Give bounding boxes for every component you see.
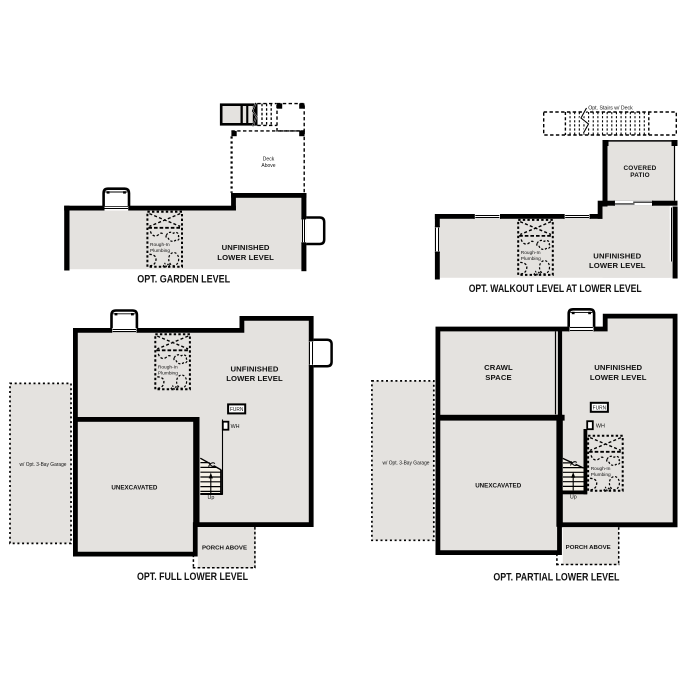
- svg-text:LOWER LEVEL: LOWER LEVEL: [217, 253, 274, 262]
- svg-text:Up: Up: [570, 495, 577, 501]
- svg-text:SPACE: SPACE: [485, 373, 511, 382]
- svg-text:OPT. FULL LOWER LEVEL: OPT. FULL LOWER LEVEL: [137, 571, 248, 583]
- svg-text:OPT. PARTIAL LOWER LEVEL: OPT. PARTIAL LOWER LEVEL: [493, 572, 619, 584]
- svg-text:CRAWL: CRAWL: [484, 363, 513, 372]
- svg-text:WH: WH: [596, 423, 605, 429]
- svg-text:w/ Opt. 3-Bay Garage: w/ Opt. 3-Bay Garage: [383, 461, 430, 467]
- svg-text:UNFINISHED: UNFINISHED: [222, 243, 270, 252]
- svg-text:PORCH ABOVE: PORCH ABOVE: [202, 546, 247, 552]
- svg-text:WH: WH: [231, 424, 240, 430]
- svg-text:UNFINISHED: UNFINISHED: [593, 252, 641, 261]
- svg-text:OPT. WALKOUT LEVEL AT LOWER LE: OPT. WALKOUT LEVEL AT LOWER LEVEL: [469, 283, 642, 295]
- svg-text:w/ Opt. 3-Bay Garage: w/ Opt. 3-Bay Garage: [20, 462, 67, 468]
- svg-text:Deck: Deck: [263, 157, 275, 163]
- svg-text:UNFINISHED: UNFINISHED: [231, 364, 279, 373]
- svg-text:OPT. GARDEN LEVEL: OPT. GARDEN LEVEL: [137, 273, 230, 285]
- svg-text:PORCH ABOVE: PORCH ABOVE: [566, 545, 611, 551]
- svg-text:UNEXCAVATED: UNEXCAVATED: [475, 482, 521, 489]
- svg-text:LOWER LEVEL: LOWER LEVEL: [589, 261, 646, 270]
- svg-text:Up: Up: [207, 495, 214, 501]
- svg-text:LOWER LEVEL: LOWER LEVEL: [590, 373, 647, 382]
- svg-text:UNEXCAVATED: UNEXCAVATED: [111, 485, 157, 492]
- svg-text:UNFINISHED: UNFINISHED: [594, 363, 642, 372]
- svg-text:COVERED: COVERED: [623, 165, 656, 172]
- svg-text:Opt. Stairs w/ Deck: Opt. Stairs w/ Deck: [588, 105, 633, 111]
- svg-text:PATIO: PATIO: [630, 172, 650, 179]
- svg-text:Above: Above: [261, 163, 275, 169]
- svg-text:LOWER LEVEL: LOWER LEVEL: [226, 374, 283, 383]
